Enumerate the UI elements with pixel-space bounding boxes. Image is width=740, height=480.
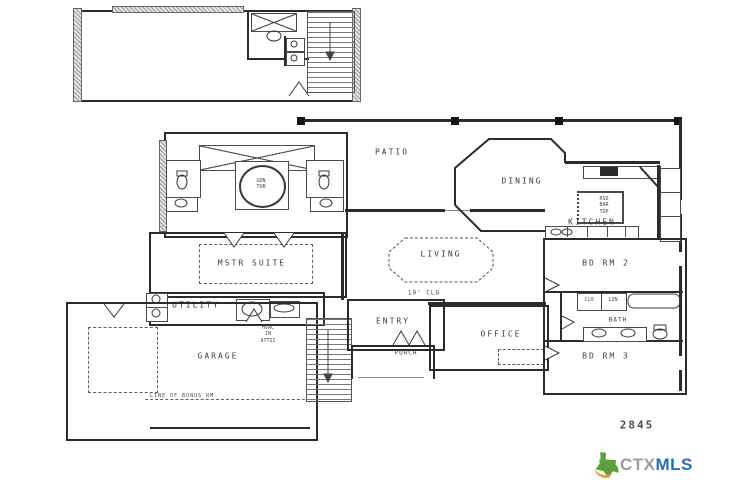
patio-wall	[300, 119, 680, 122]
counter-divider	[567, 227, 568, 237]
room-label-entry: ENTRY	[376, 317, 410, 326]
cooktop-icon	[600, 167, 618, 176]
patio-post	[297, 117, 305, 125]
floor-plan-image: GDNTUB MSTR SUITE UTILITY LINE OF BONUS …	[0, 0, 740, 480]
stairs-main	[306, 318, 352, 402]
patio-post	[555, 117, 563, 125]
tub-note: GDNTUB	[256, 178, 265, 191]
room-label-patio: PATIO	[375, 148, 409, 157]
vanity	[310, 197, 344, 212]
wall	[428, 302, 546, 305]
plan-number: 2845	[620, 419, 655, 432]
ceiling-note: 10' CLG	[408, 290, 440, 297]
water-closet	[166, 160, 201, 198]
wall	[247, 10, 249, 60]
texas-icon	[592, 451, 620, 479]
hvac-note: HVACINATTIC	[260, 325, 275, 344]
dining-bay-walls	[455, 139, 659, 231]
linen-label: LIN	[608, 297, 617, 303]
counter-divider	[587, 227, 588, 237]
bonus-room-overlay-outline	[88, 327, 158, 393]
washer-icon	[286, 38, 305, 52]
porch-step	[358, 377, 424, 378]
room-label-bd-rm-2: BD RM 2	[582, 259, 630, 268]
dryer-icon	[286, 52, 305, 66]
bath-vanity	[583, 327, 647, 342]
vanity	[166, 197, 198, 212]
room-label-porch: PORCH	[394, 350, 417, 357]
room-label-office: OFFICE	[481, 330, 522, 339]
refrigerator-icon	[660, 168, 681, 194]
counter-divider	[607, 227, 608, 237]
island-note: RSDBARTOP	[599, 196, 608, 215]
counter-divider	[625, 227, 626, 237]
room-label-bd-rm-3: BD RM 3	[582, 352, 630, 361]
room-label-living: LIVING	[421, 250, 462, 259]
closet-label: CLO	[584, 297, 593, 303]
wall	[345, 209, 445, 212]
wall-hatch	[112, 6, 244, 13]
room-label-mstr-suite: MSTR SUITE	[218, 259, 286, 268]
kitchen-counter	[583, 166, 661, 179]
kitchen-top-wall	[565, 161, 660, 164]
garage-door-line	[150, 427, 310, 429]
water-closet	[306, 160, 344, 198]
bonus-line-note: LINE OF BONUS RM	[150, 393, 214, 399]
room-label-bath: BATH	[609, 317, 627, 324]
porch-outline	[351, 345, 435, 379]
living-ceiling-outline	[389, 238, 493, 282]
logo-ctx: CTX	[620, 452, 656, 478]
wall	[560, 293, 562, 340]
oven-icon	[660, 192, 681, 218]
room-label-garage: GARAGE	[198, 352, 239, 361]
attic-access-icon	[251, 13, 297, 32]
office-ceiling-outline	[498, 349, 544, 365]
logo-mls: MLS	[656, 452, 693, 478]
ctxmls-watermark: CTXMLS	[592, 451, 693, 479]
wall-hatch	[73, 8, 82, 102]
bonus-line	[145, 399, 315, 400]
stairs-upper	[307, 11, 355, 93]
door-opening	[288, 96, 310, 100]
sliding-door	[445, 210, 470, 211]
room-label-dining: DINING	[502, 177, 543, 186]
wall	[341, 232, 344, 300]
patio-post	[451, 117, 459, 125]
wall	[470, 209, 545, 212]
